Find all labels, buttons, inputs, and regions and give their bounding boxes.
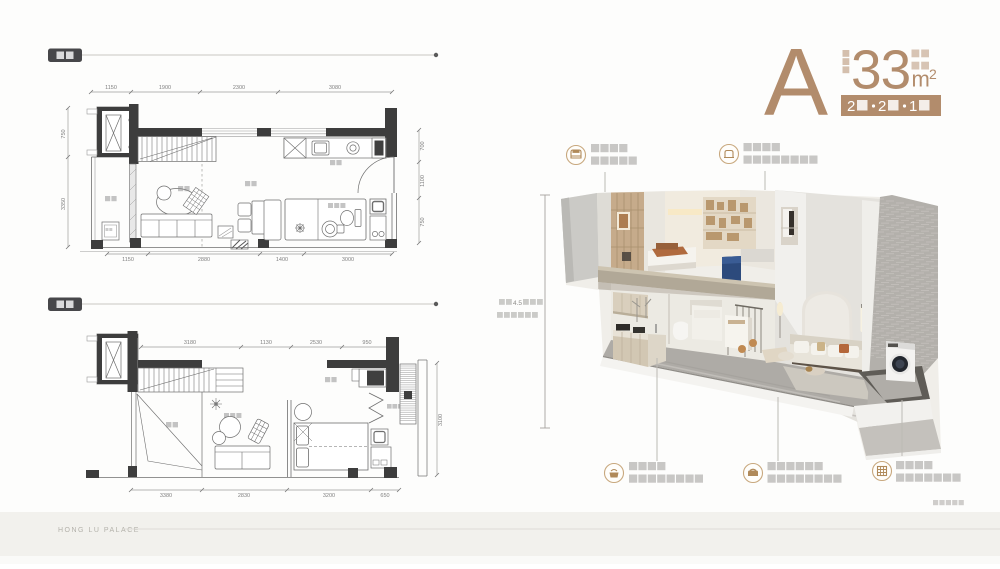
- svg-text:3180: 3180: [184, 340, 196, 346]
- svg-text:4.5: 4.5: [513, 300, 522, 307]
- svg-text:3000: 3000: [342, 257, 354, 263]
- svg-text:700: 700: [420, 141, 426, 150]
- svg-text:2: 2: [847, 98, 855, 115]
- svg-text:2530: 2530: [310, 340, 322, 346]
- svg-text:950: 950: [362, 340, 371, 346]
- svg-text:1400: 1400: [276, 257, 288, 263]
- svg-text:HONG LU PALACE: HONG LU PALACE: [58, 527, 140, 534]
- svg-text:3080: 3080: [329, 85, 341, 91]
- svg-text:A: A: [764, 29, 828, 136]
- svg-text:650: 650: [380, 493, 389, 499]
- svg-text:33: 33: [851, 39, 910, 101]
- svg-text:750: 750: [61, 129, 67, 138]
- svg-text:2880: 2880: [198, 257, 210, 263]
- svg-text:1150: 1150: [122, 257, 134, 263]
- svg-text:1: 1: [909, 98, 917, 115]
- svg-text:3380: 3380: [160, 493, 172, 499]
- svg-text:1150: 1150: [105, 85, 117, 91]
- svg-text:1130: 1130: [260, 340, 272, 346]
- svg-text:2: 2: [878, 98, 886, 115]
- svg-text:1100: 1100: [420, 175, 426, 187]
- svg-text:2: 2: [929, 66, 937, 82]
- svg-text:3350: 3350: [61, 198, 67, 210]
- svg-text:m: m: [912, 67, 930, 92]
- svg-text:750: 750: [420, 217, 426, 226]
- svg-text:2830: 2830: [238, 493, 250, 499]
- svg-text:2300: 2300: [233, 85, 245, 91]
- svg-text:3100: 3100: [438, 414, 444, 426]
- svg-text:3200: 3200: [323, 493, 335, 499]
- svg-text:1900: 1900: [159, 85, 171, 91]
